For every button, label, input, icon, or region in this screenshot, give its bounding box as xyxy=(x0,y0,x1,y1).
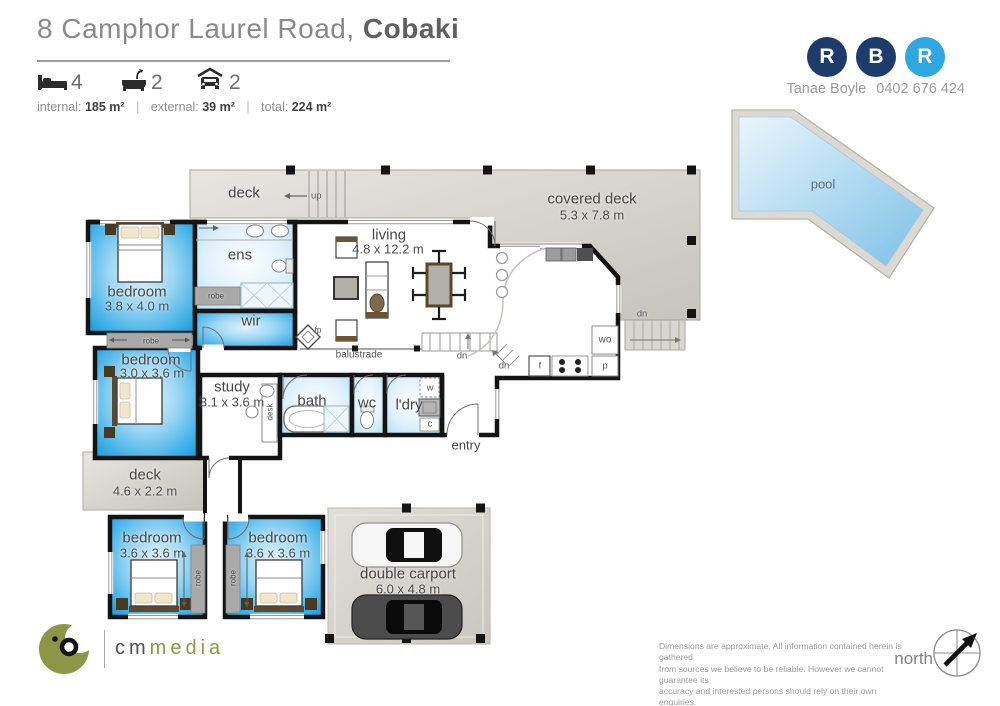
disclaimer-line: accuracy and interested persons should r… xyxy=(659,686,911,706)
car-dark xyxy=(352,595,462,639)
label-wir: wir xyxy=(241,313,260,330)
car-icon xyxy=(195,67,227,93)
label-ldry: l'dry xyxy=(395,397,422,414)
hallway xyxy=(205,458,240,517)
agent-phone: 0402 676 424 xyxy=(866,81,965,97)
label-bedroom3-size: 3.6 x 3.6 m xyxy=(120,546,184,561)
label-study-size: 3.1 x 3.6 m xyxy=(200,395,264,410)
rbr-logo-circle-3: R xyxy=(905,37,945,77)
rbr-logo-circle-2: B xyxy=(856,37,896,77)
footer-divider xyxy=(104,630,105,668)
external-value: 39 m² xyxy=(202,100,235,114)
cmmedia-wordmark: cmmedia xyxy=(115,637,224,660)
label-robe-4: robe xyxy=(229,570,238,586)
separator: | xyxy=(128,100,147,114)
label-bedroom4: bedroom xyxy=(248,530,307,547)
agent-name: Tanae Boyle xyxy=(786,81,866,97)
label-pool: pool xyxy=(811,177,836,192)
label-entry: entry xyxy=(452,438,481,453)
label-wc: wc xyxy=(358,395,376,412)
label-robe-ens: robe xyxy=(208,292,224,301)
label-wo: wo xyxy=(599,335,612,346)
bottom-robes xyxy=(182,545,250,613)
label-robe-master: robe xyxy=(143,337,159,346)
page-title: 8 Camphor Laurel Road, Cobaki xyxy=(37,13,459,45)
cmmedia-logo xyxy=(39,623,95,674)
cars-count: 2 xyxy=(229,71,241,95)
total-value: 224 m² xyxy=(292,100,332,114)
label-dn-3: dn xyxy=(637,309,648,320)
area-summary: internal: 185 m² | external: 39 m² | tot… xyxy=(37,100,331,114)
beds-count: 4 xyxy=(71,71,83,95)
label-covered-deck-size: 5.3 x 7.8 m xyxy=(560,208,624,223)
brand-media: media xyxy=(150,637,224,659)
label-desk: desk xyxy=(266,404,275,421)
label-deck-top: deck xyxy=(228,185,260,202)
car-white xyxy=(352,523,462,567)
separator: | xyxy=(238,100,257,114)
label-f: f xyxy=(539,361,542,372)
label-bath: bath xyxy=(297,393,326,410)
north-label: north xyxy=(848,649,933,669)
label-dn-1: dn xyxy=(457,351,468,362)
label-deck2-size: 4.6 x 2.2 m xyxy=(113,484,177,499)
label-p: p xyxy=(602,361,607,372)
label-w: w xyxy=(427,383,434,394)
brand-cm: cm xyxy=(115,637,150,659)
floorplan-page: 8 Camphor Laurel Road, Cobaki 4 2 2 inte… xyxy=(0,0,1000,706)
label-bedroom2-size: 3.0 x 3.6 m xyxy=(120,366,184,381)
label-c: c xyxy=(428,419,433,430)
label-fp: fp xyxy=(315,326,322,335)
label-robe-3: robe xyxy=(194,570,203,586)
label-bedroom3: bedroom xyxy=(122,530,181,547)
label-carport: double carport xyxy=(360,566,456,583)
title-underline xyxy=(37,60,450,62)
label-bedroom1-size: 3.8 x 4.0 m xyxy=(105,299,169,314)
label-carport-size: 6.0 x 4.8 m xyxy=(376,582,440,597)
hall-floor xyxy=(198,348,298,375)
baths-count: 2 xyxy=(151,71,163,95)
label-bedroom4-size: 3.6 x 3.6 m xyxy=(246,546,310,561)
label-dn-2: dn xyxy=(499,361,510,372)
bed-icon xyxy=(37,72,69,92)
internal-value: 185 m² xyxy=(85,100,125,114)
rbr-logo-circle-1: R xyxy=(807,37,847,77)
label-deck2: deck xyxy=(129,467,161,484)
agent-details: Tanae Boyle0402 676 424 xyxy=(786,81,965,97)
external-label: external: xyxy=(151,100,199,114)
label-up: up xyxy=(311,191,322,202)
bath-icon xyxy=(119,68,151,92)
label-ens: ens xyxy=(228,247,252,264)
label-balustrade: balustrade xyxy=(336,350,383,361)
internal-label: internal: xyxy=(37,100,81,114)
north-symbol xyxy=(934,630,980,676)
pool-shape xyxy=(732,110,934,278)
suburb: Cobaki xyxy=(363,13,459,44)
label-living-size: 4.8 x 12.2 m xyxy=(352,242,424,257)
total-label: total: xyxy=(261,100,288,114)
street-address: 8 Camphor Laurel Road, xyxy=(37,13,355,44)
covered-deck-stairs xyxy=(625,320,685,350)
label-study: study xyxy=(214,379,250,396)
label-covered-deck: covered deck xyxy=(547,191,636,208)
